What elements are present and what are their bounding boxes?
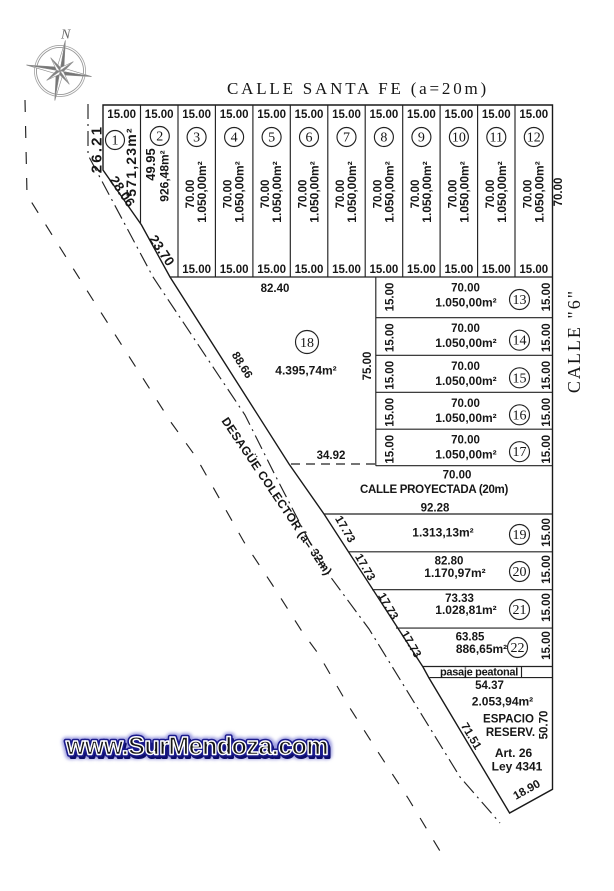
svg-text:70.00: 70.00	[451, 323, 480, 335]
svg-text:12: 12	[527, 131, 541, 146]
svg-text:1.050,00m²: 1.050,00m²	[435, 374, 496, 388]
svg-text:6: 6	[306, 131, 313, 146]
svg-text:15.00: 15.00	[182, 109, 211, 121]
svg-text:1.050,00m²: 1.050,00m²	[435, 448, 496, 462]
svg-text:10: 10	[452, 131, 466, 146]
svg-text:15.00: 15.00	[407, 264, 436, 276]
svg-text:ESPACIO: ESPACIO	[483, 714, 534, 726]
svg-text:pasaje peatonal: pasaje peatonal	[440, 666, 518, 678]
svg-text:15.00: 15.00	[145, 109, 174, 121]
svg-text:70.00: 70.00	[553, 178, 565, 207]
svg-text:70.00: 70.00	[451, 361, 480, 373]
svg-text:4.395,74m²: 4.395,74m²	[275, 364, 336, 378]
svg-text:15.00: 15.00	[541, 283, 553, 312]
svg-text:15.00: 15.00	[332, 109, 361, 121]
svg-text:70.00: 70.00	[451, 283, 480, 295]
svg-text:1.170,97m²: 1.170,97m²	[424, 566, 485, 580]
svg-text:15.00: 15.00	[370, 109, 399, 121]
svg-text:886,65m²: 886,65m²	[456, 642, 507, 656]
svg-text:15.00: 15.00	[370, 264, 399, 276]
svg-text:N: N	[60, 28, 71, 43]
svg-text:15.00: 15.00	[220, 109, 249, 121]
svg-text:15.00: 15.00	[445, 264, 474, 276]
svg-text:15.00: 15.00	[541, 631, 553, 660]
svg-text:1.050,00m²: 1.050,00m²	[495, 161, 509, 222]
svg-text:15.00: 15.00	[385, 283, 397, 312]
svg-text:17.73: 17.73	[375, 591, 400, 622]
svg-text:15.00: 15.00	[220, 264, 249, 276]
svg-text:15.00: 15.00	[541, 361, 553, 390]
svg-text:49.95: 49.95	[143, 148, 158, 181]
svg-text:11: 11	[490, 131, 503, 146]
svg-text:15.00: 15.00	[332, 264, 361, 276]
svg-text:15.00: 15.00	[541, 555, 553, 584]
svg-text:23.70: 23.70	[146, 232, 177, 268]
svg-text:15.00: 15.00	[541, 593, 553, 622]
svg-text:15.00: 15.00	[519, 264, 548, 276]
svg-text:9: 9	[418, 131, 425, 146]
svg-text:21: 21	[513, 603, 527, 618]
svg-text:15.00: 15.00	[385, 398, 397, 427]
svg-text:1.050,00m²: 1.050,00m²	[420, 161, 434, 222]
svg-text:22: 22	[511, 641, 525, 656]
svg-text:15: 15	[513, 371, 527, 386]
svg-text:1.050,00m²: 1.050,00m²	[435, 296, 496, 310]
svg-text:14: 14	[513, 334, 527, 349]
svg-text:RESERV.: RESERV.	[486, 727, 535, 739]
svg-text:19: 19	[513, 528, 527, 543]
svg-text:70.00: 70.00	[451, 435, 480, 447]
svg-text:2.053,94m²: 2.053,94m²	[472, 695, 533, 709]
svg-text:1.050,00m²: 1.050,00m²	[233, 161, 247, 222]
svg-text:17.73: 17.73	[398, 629, 423, 660]
svg-text:34.92: 34.92	[317, 450, 346, 462]
svg-text:4: 4	[231, 131, 238, 146]
svg-text:17.73: 17.73	[332, 514, 357, 545]
svg-text:1.050,00m²: 1.050,00m²	[270, 161, 284, 222]
svg-text:www.SurMendoza.com: www.SurMendoza.com	[65, 733, 328, 761]
svg-text:15.00: 15.00	[257, 109, 286, 121]
svg-text:75.00: 75.00	[362, 352, 374, 381]
svg-text:70.00: 70.00	[451, 398, 480, 410]
svg-text:1.050,00m²: 1.050,00m²	[308, 161, 322, 222]
svg-text:2: 2	[156, 130, 163, 145]
svg-text:1.050,00m²: 1.050,00m²	[195, 161, 209, 222]
svg-text:15.00: 15.00	[182, 264, 211, 276]
svg-text:3: 3	[193, 131, 200, 146]
svg-text:15.00: 15.00	[385, 361, 397, 390]
svg-text:5: 5	[268, 131, 275, 146]
svg-text:92.28: 92.28	[421, 503, 450, 515]
svg-text:15.00: 15.00	[385, 323, 397, 352]
svg-text:15.00: 15.00	[407, 109, 436, 121]
svg-text:17: 17	[513, 445, 527, 460]
svg-text:82.40: 82.40	[261, 283, 290, 295]
svg-text:Ley 4341: Ley 4341	[492, 760, 543, 774]
svg-text:26.21: 26.21	[89, 125, 106, 174]
svg-text:1.313,13m²: 1.313,13m²	[412, 526, 473, 540]
svg-text:15.00: 15.00	[295, 264, 324, 276]
svg-text:18: 18	[300, 336, 314, 351]
svg-text:1.050,00m²: 1.050,00m²	[382, 161, 396, 222]
svg-text:DESAGÜE COLECTOR (a= 32m): DESAGÜE COLECTOR (a= 32m)	[219, 414, 336, 578]
svg-text:1: 1	[112, 134, 119, 149]
svg-text:15.00: 15.00	[445, 109, 474, 121]
svg-text:16: 16	[513, 408, 527, 423]
svg-text:CALLE PROYECTADA (20m): CALLE PROYECTADA (20m)	[360, 484, 508, 496]
svg-text:17.73: 17.73	[352, 552, 377, 583]
svg-text:8: 8	[380, 131, 387, 146]
svg-text:15.00: 15.00	[482, 264, 511, 276]
svg-text:1.028,81m²: 1.028,81m²	[435, 603, 496, 617]
svg-text:70.00: 70.00	[443, 470, 472, 482]
svg-text:15.00: 15.00	[519, 109, 548, 121]
svg-text:CALLE "6": CALLE "6"	[564, 289, 584, 393]
svg-text:50.70: 50.70	[539, 711, 551, 740]
svg-text:Art. 26: Art. 26	[495, 746, 533, 760]
svg-text:13: 13	[513, 293, 527, 308]
svg-text:1.050,00m²: 1.050,00m²	[435, 411, 496, 425]
svg-text:7: 7	[343, 131, 350, 146]
svg-text:15.00: 15.00	[257, 264, 286, 276]
svg-text:15.00: 15.00	[541, 323, 553, 352]
svg-text:15.00: 15.00	[541, 435, 553, 464]
svg-text:15.00: 15.00	[107, 109, 136, 121]
svg-text:15.00: 15.00	[541, 518, 553, 547]
svg-text:15.00: 15.00	[541, 398, 553, 427]
svg-text:1.050,00m²: 1.050,00m²	[457, 161, 471, 222]
svg-text:1.050,00m²: 1.050,00m²	[345, 161, 359, 222]
svg-text:926,48m²: 926,48m²	[158, 150, 172, 201]
svg-text:18.90: 18.90	[512, 778, 543, 802]
svg-text:20: 20	[513, 565, 527, 580]
svg-text:CALLE SANTA FE (a=20m): CALLE SANTA FE (a=20m)	[227, 79, 489, 98]
svg-text:54.37: 54.37	[475, 680, 504, 692]
svg-text:15.00: 15.00	[385, 435, 397, 464]
svg-text:1.050,00m²: 1.050,00m²	[532, 161, 546, 222]
svg-text:1.050,00m²: 1.050,00m²	[435, 336, 496, 350]
svg-text:71.51: 71.51	[458, 721, 483, 752]
svg-text:15.00: 15.00	[295, 109, 324, 121]
svg-text:15.00: 15.00	[482, 109, 511, 121]
